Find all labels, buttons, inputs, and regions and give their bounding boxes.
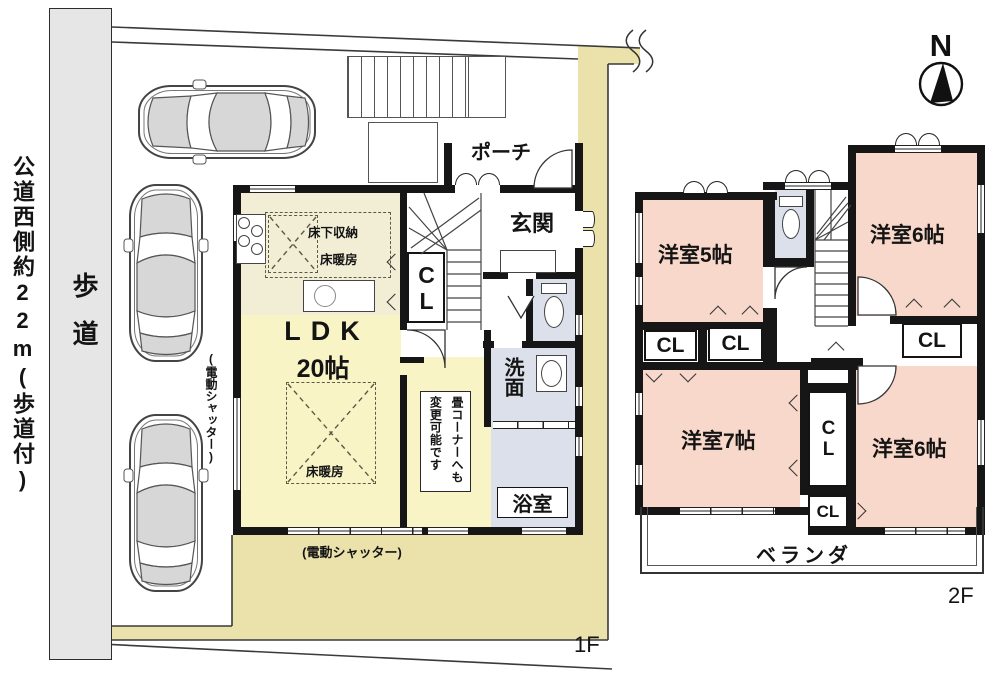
floor-plan-page: N 公道西側約22m(歩道付) 歩道 [0,0,1000,674]
burner-icon [238,235,250,247]
wall [536,272,577,279]
window [635,277,643,305]
wall [806,182,814,267]
wall [848,145,856,326]
floor-heating-kitchen-label: 床暖房 [320,249,358,268]
window [575,387,583,406]
wall [635,192,777,200]
window [250,185,295,193]
corridor [401,330,491,357]
wall [800,362,808,495]
wall [484,330,491,427]
car-icon [124,185,208,361]
shoe-cabinet [500,250,556,273]
wall [698,325,707,365]
porch-label: ポーチ [471,136,531,165]
car-icon [124,415,208,591]
toilet-icon [779,196,803,207]
entrance-label: 玄関 [510,206,554,238]
window [575,315,583,335]
floor-heating-living-label: 床暖房 [306,461,344,480]
bathroom-label: 浴室 [513,488,553,517]
window [428,527,468,535]
entrance-door-opening [575,211,583,248]
floor1-tag: 1F [574,632,600,658]
underfloor-storage-label: 床下収納 [308,222,358,241]
closet-label: CL [657,334,685,358]
shutter-bottom-label: (電動シャッター) [272,542,432,561]
wall [400,357,424,363]
closet-box: CL [644,330,697,361]
wall [763,308,777,370]
shutter-side-label: (電動シャッター) [203,352,220,488]
entrance-double-door-icon [583,211,595,228]
window [288,527,422,535]
closet-1f: CL [407,252,445,323]
bedroom6-top-label: 洋室6帖 [870,219,945,249]
window [635,393,643,415]
window [575,437,583,456]
wall [848,316,856,324]
burner-icon [251,225,263,237]
window [977,185,985,233]
bedroom5-label: 洋室5帖 [658,239,733,269]
burner-icon [251,243,263,255]
closet-label: CL [918,329,946,353]
wall [575,143,583,535]
window [635,213,643,263]
wall [526,279,533,348]
kitchen-sink-icon [314,285,336,307]
wall [800,487,856,495]
compass-north-label: N [930,28,952,63]
wall [444,143,452,193]
wall [763,192,775,267]
bath-door [493,421,575,429]
sidewalk-label: 歩道 [66,272,103,392]
veranda-label: ベランダ [756,539,852,568]
wall [765,258,814,267]
closet-box: CL [708,327,763,361]
window [635,465,643,485]
window [895,145,941,153]
wall [400,375,407,527]
closet-label: CL [722,332,750,356]
wash-basin-bowl-icon [541,360,562,387]
ldk-size-label: 20帖 [279,349,367,385]
wall [522,341,577,348]
window [785,182,831,190]
ldk-label: LDK [279,316,375,347]
entrance-double-door-icon [583,230,595,247]
wall [483,272,508,279]
compass-icon: N [920,28,962,105]
car-icon [139,80,315,164]
tatami-note-box: 畳コーナーへも変更可能です [420,391,471,492]
entrance-steps [347,56,469,118]
entrance-landing [368,122,438,183]
bathroom-label-box: 浴室 [497,487,568,518]
toilet-bowl-icon [544,296,564,328]
window [977,420,985,465]
wall [500,185,583,193]
window [233,398,241,490]
burner-icon [238,217,250,229]
wall [800,383,856,391]
entrance-steps-side [469,56,506,118]
closet-box-mid: CL [808,391,848,487]
bedroom6-bottom-label: 洋室6帖 [872,433,947,463]
bedroom7-label: 洋室7帖 [681,425,756,455]
window [522,527,566,535]
road-label: 公道西側約22m(歩道付) [6,155,38,500]
floor2-tag: 2F [948,583,974,609]
wall [635,362,812,370]
toilet-bowl-icon [782,209,800,239]
toilet-icon [541,283,567,294]
washroom-label: 洗面 [498,357,527,419]
closet-box: CL [902,323,962,358]
